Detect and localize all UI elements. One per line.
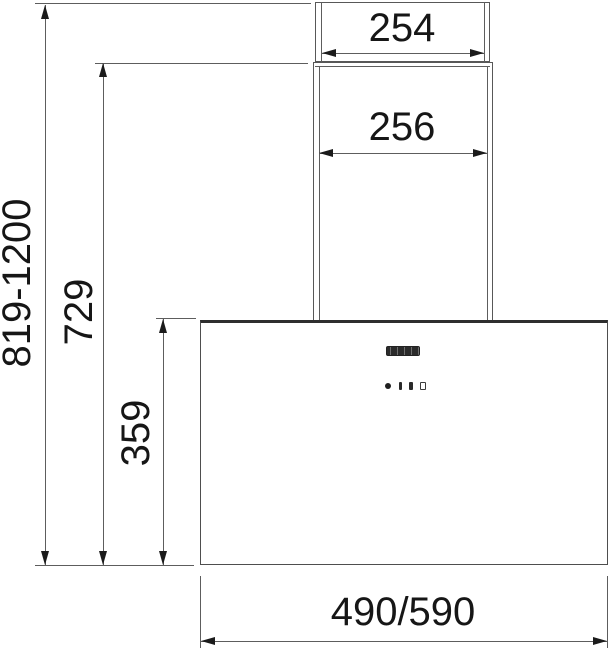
brand-logo bbox=[386, 346, 420, 356]
fan-speed-1-bar-icon bbox=[399, 382, 402, 390]
arrow-left-icon bbox=[319, 149, 333, 157]
extension-line-width-right bbox=[607, 576, 608, 648]
arrow-down-icon bbox=[159, 551, 167, 565]
dim-label-body-width: 490/590 bbox=[331, 592, 476, 632]
extension-line-hood-bottom bbox=[35, 565, 194, 566]
dim-label-lower-chimney-width: 256 bbox=[369, 107, 436, 147]
arrow-up-icon bbox=[99, 63, 107, 77]
dim-line-chimney-height bbox=[103, 63, 104, 565]
arrow-left-icon bbox=[322, 49, 336, 57]
fan-speed-2-bar-icon bbox=[409, 382, 413, 390]
power-dot-icon bbox=[385, 383, 391, 389]
dim-line-body-height bbox=[163, 319, 164, 565]
arrow-right-icon bbox=[593, 637, 607, 645]
chimney-upper-inner-right-line bbox=[484, 2, 485, 62]
dim-line-lower-chimney-width bbox=[319, 153, 487, 154]
chimney-lower-section bbox=[313, 62, 493, 320]
extension-line-ceiling bbox=[35, 3, 311, 4]
dim-line-overall-height bbox=[45, 5, 46, 565]
dim-label-upper-chimney-width: 254 bbox=[369, 8, 436, 48]
arrow-right-icon bbox=[470, 49, 484, 57]
dim-label-body-height: 359 bbox=[116, 400, 156, 467]
dimension-drawing: 819-1200 729 359 254 256 490/590 bbox=[0, 0, 610, 650]
chimney-lower-inner-right-line bbox=[487, 66, 488, 320]
arrow-left-icon bbox=[201, 637, 215, 645]
dim-line-body-width bbox=[201, 641, 607, 642]
dim-line-upper-chimney-width bbox=[322, 53, 484, 54]
extension-line-chimney-joint bbox=[95, 63, 308, 64]
arrow-right-icon bbox=[473, 149, 487, 157]
chimney-lower-inner-left-line bbox=[319, 66, 320, 320]
chimney-joint-line bbox=[315, 66, 490, 67]
dim-label-chimney-height: 729 bbox=[59, 279, 99, 346]
arrow-up-icon bbox=[159, 319, 167, 333]
arrow-down-icon bbox=[41, 551, 49, 565]
dim-label-overall-height-range: 819-1200 bbox=[0, 198, 37, 367]
arrow-up-icon bbox=[41, 5, 49, 19]
fan-speed-3-outline-icon bbox=[420, 382, 426, 390]
hood-body bbox=[200, 320, 608, 565]
arrow-down-icon bbox=[99, 551, 107, 565]
